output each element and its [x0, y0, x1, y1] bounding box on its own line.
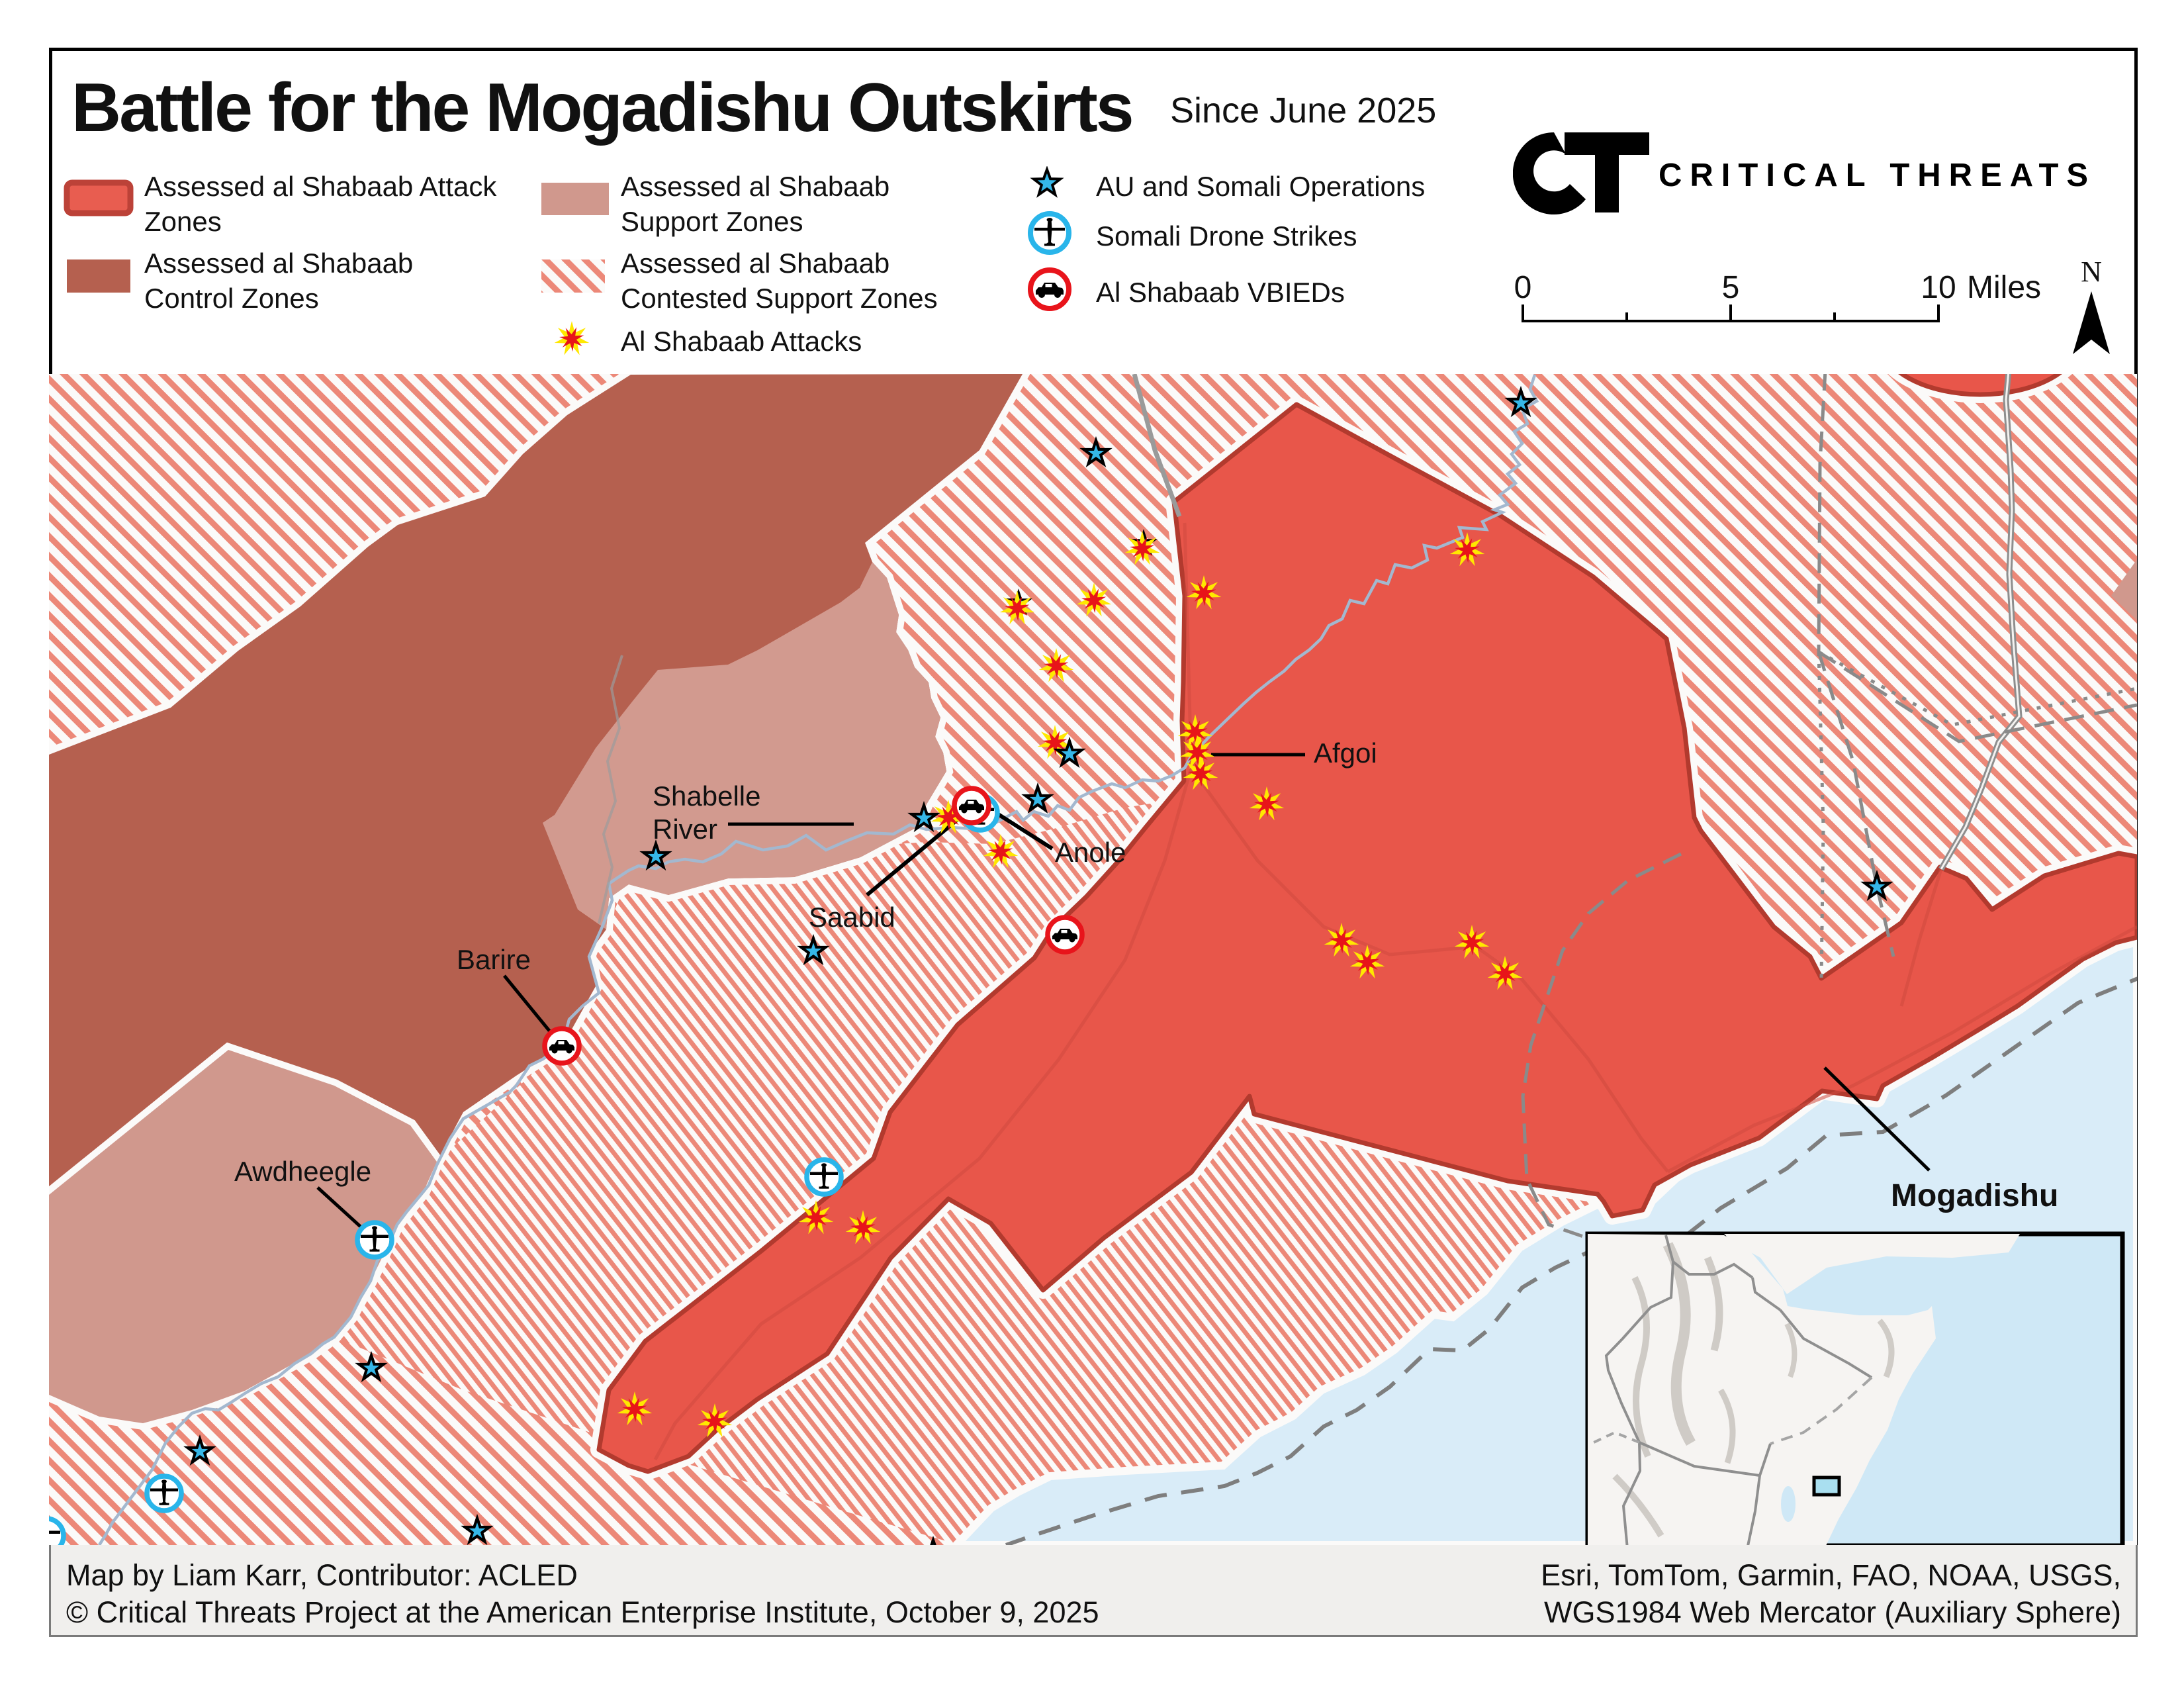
svg-text:Anole: Anole [1055, 837, 1126, 868]
svg-text:Barire: Barire [457, 944, 531, 975]
svg-text:N: N [2081, 256, 2102, 288]
svg-text:5: 5 [1722, 270, 1740, 305]
svg-text:Miles: Miles [1967, 270, 2041, 305]
svg-text:0: 0 [1514, 270, 1532, 305]
svg-text:Mogadishu: Mogadishu [1891, 1178, 2058, 1213]
svg-text:Saabid: Saabid [809, 902, 895, 933]
svg-text:River: River [653, 814, 717, 845]
svg-text:10: 10 [1921, 270, 1956, 305]
svg-text:Awdheegle: Awdheegle [234, 1156, 371, 1187]
svg-text:Afgoi: Afgoi [1314, 737, 1377, 769]
svg-text:Shabelle: Shabelle [653, 780, 760, 812]
